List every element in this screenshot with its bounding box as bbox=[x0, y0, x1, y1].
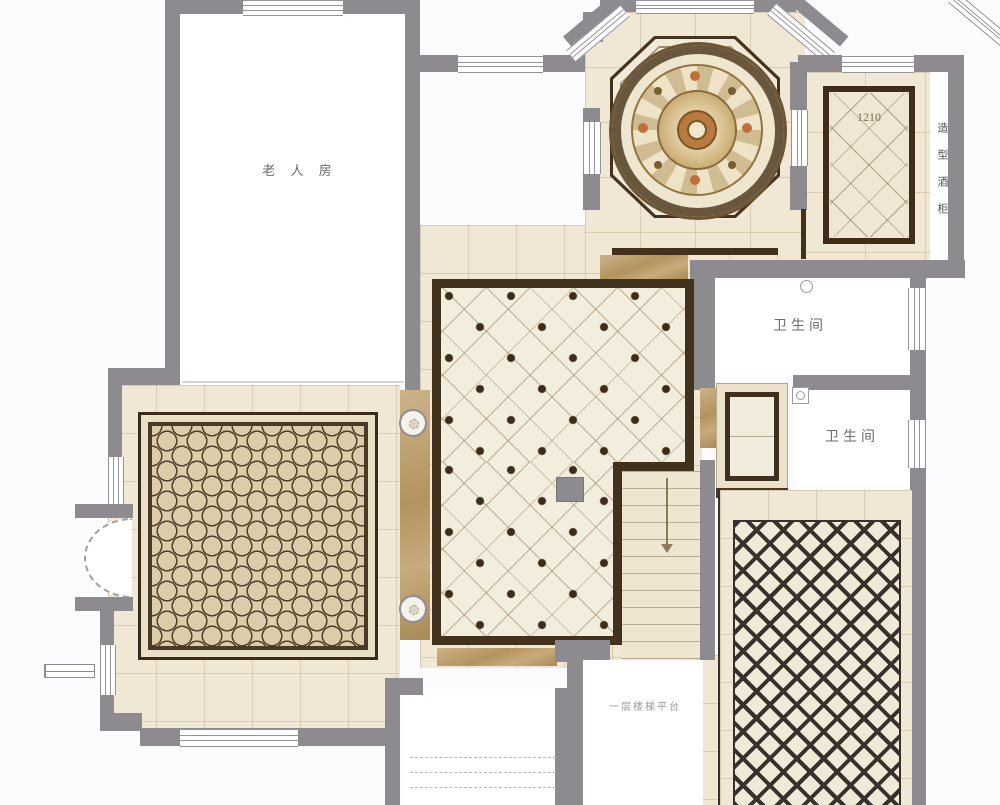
medallion-accent bbox=[728, 161, 736, 169]
window bbox=[583, 122, 601, 174]
wall bbox=[108, 368, 180, 385]
staircase bbox=[622, 471, 700, 660]
floor-drain-icon bbox=[800, 280, 813, 293]
vestibule-inlay bbox=[725, 392, 779, 481]
wall bbox=[690, 260, 965, 278]
wall bbox=[555, 688, 583, 805]
wall bbox=[100, 713, 142, 731]
window bbox=[636, 0, 754, 14]
medallion-accent bbox=[690, 175, 700, 185]
wall bbox=[100, 611, 114, 645]
hall-border bbox=[685, 279, 694, 471]
marble-threshold bbox=[700, 388, 716, 448]
marble-threshold bbox=[437, 648, 557, 666]
rosette-center bbox=[409, 419, 419, 429]
lattice-rug bbox=[733, 520, 901, 805]
wall bbox=[420, 55, 458, 72]
medallion-accent bbox=[654, 87, 662, 95]
roof-overhang-dashed bbox=[410, 757, 556, 758]
wall bbox=[798, 55, 842, 72]
elder-room bbox=[180, 14, 405, 381]
window bbox=[458, 56, 543, 73]
window bbox=[842, 56, 914, 73]
elder-room-label: 老 人 房 bbox=[225, 160, 375, 179]
window bbox=[180, 729, 298, 747]
window bbox=[791, 110, 808, 166]
window bbox=[908, 420, 926, 468]
vestibule-frame bbox=[716, 383, 788, 490]
medallion-accent bbox=[690, 71, 700, 81]
floor-drain-icon bbox=[792, 387, 809, 404]
quatrefoil-rug bbox=[148, 422, 368, 650]
roof-overhang-dashed bbox=[410, 772, 556, 773]
floor-drain-circle bbox=[796, 391, 805, 400]
window-diagonal bbox=[948, 0, 1000, 50]
tile-code: 1210 bbox=[829, 110, 909, 125]
bay-window-arc bbox=[84, 518, 132, 598]
bathroom-upper-label: 卫生间 bbox=[735, 315, 865, 335]
medallion-accent bbox=[638, 123, 648, 133]
wall bbox=[583, 174, 600, 210]
exterior-ledge bbox=[44, 664, 95, 678]
rug-frame bbox=[138, 412, 378, 660]
wall bbox=[385, 678, 423, 695]
rosette-medallion bbox=[399, 595, 427, 623]
hall-border bbox=[613, 462, 622, 645]
hall-border bbox=[432, 279, 441, 645]
stair-landing-label: 一层楼梯平台 bbox=[585, 698, 705, 713]
window bbox=[100, 645, 116, 695]
floor-plan: 老 人 房 1210 bbox=[0, 0, 1000, 805]
wall bbox=[75, 504, 133, 518]
medallion-accent bbox=[742, 123, 752, 133]
hall-diamond-field bbox=[441, 462, 613, 636]
hall-border bbox=[432, 279, 694, 288]
marble-threshold bbox=[600, 255, 688, 279]
wall bbox=[583, 108, 600, 122]
wall bbox=[165, 0, 180, 384]
wall bbox=[567, 655, 583, 690]
wall bbox=[700, 460, 715, 660]
wall bbox=[405, 14, 420, 390]
wall bbox=[75, 597, 133, 611]
window bbox=[908, 288, 926, 350]
wine-cabinet-label: 造型酒柜 bbox=[928, 96, 950, 256]
hall-diamond-field bbox=[441, 288, 685, 462]
wall bbox=[910, 390, 926, 420]
medallion-accent bbox=[654, 161, 662, 169]
window bbox=[108, 457, 124, 505]
medallion-center-dot bbox=[687, 120, 707, 140]
stair-landing-room bbox=[583, 660, 703, 805]
rosette-center bbox=[409, 605, 419, 615]
wall bbox=[108, 385, 122, 457]
bathroom-lower-label: 卫生间 bbox=[792, 426, 912, 446]
medallion-accent bbox=[728, 87, 736, 95]
down-arrow-icon bbox=[661, 544, 673, 553]
foyer-threshold bbox=[612, 248, 778, 255]
structural-column bbox=[556, 477, 584, 502]
door-trim bbox=[801, 209, 806, 259]
hall-border bbox=[613, 462, 694, 471]
wall bbox=[343, 0, 420, 14]
wall bbox=[948, 55, 964, 263]
wall bbox=[910, 468, 926, 805]
roof-overhang-dashed bbox=[410, 787, 556, 788]
window bbox=[243, 0, 343, 16]
wine-room-frame: 1210 bbox=[823, 86, 915, 244]
wall bbox=[790, 166, 807, 210]
wall bbox=[385, 695, 400, 805]
elder-room-floor-line bbox=[182, 381, 404, 383]
stair-arrow-line bbox=[666, 478, 668, 544]
rosette-medallion bbox=[399, 409, 427, 437]
wall bbox=[793, 375, 913, 390]
